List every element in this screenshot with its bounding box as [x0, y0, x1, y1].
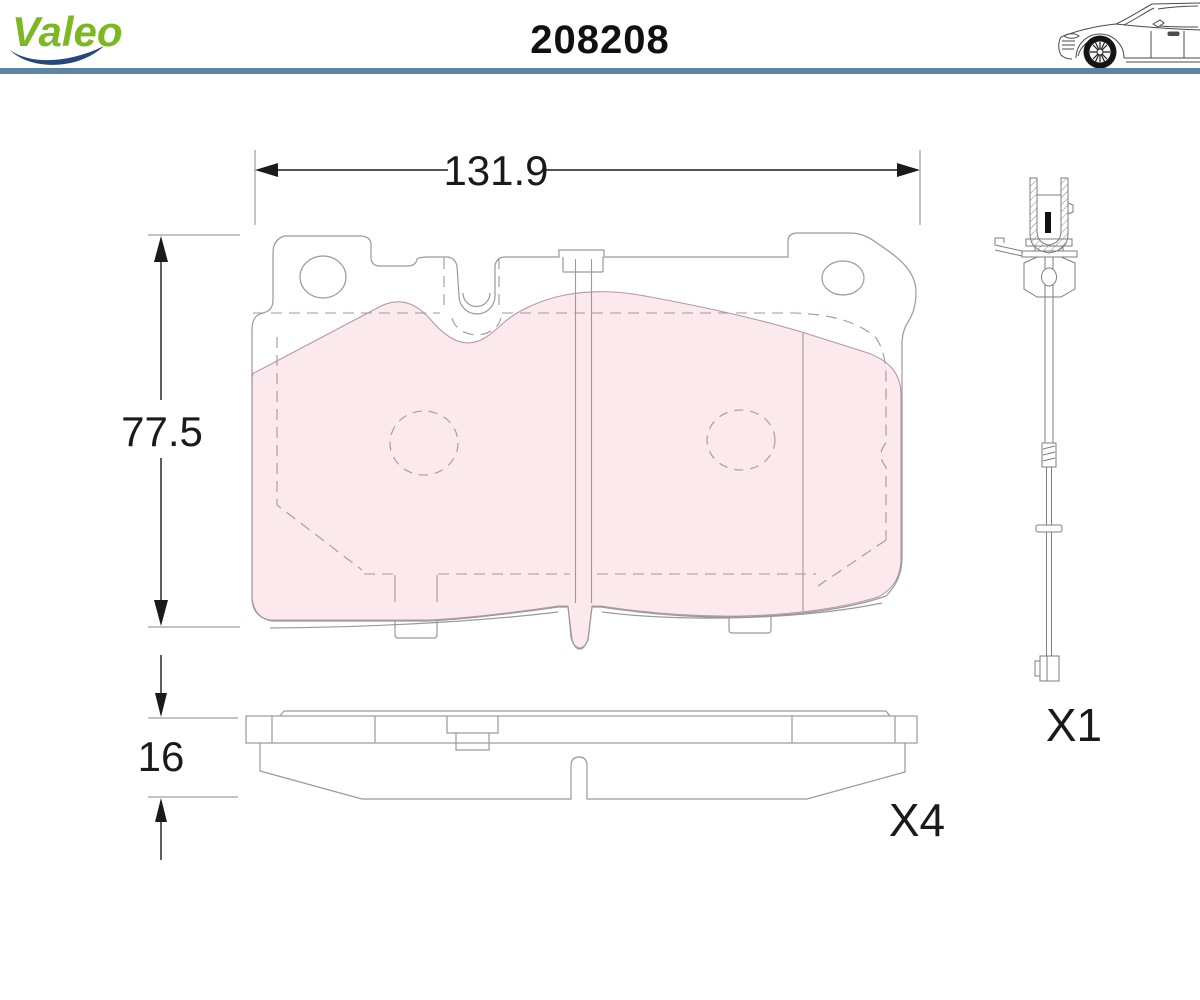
sensor-terminal — [1040, 656, 1059, 681]
dimension-width: 131.9 — [255, 147, 920, 225]
mounting-hole-right — [822, 261, 864, 295]
side-view-friction — [260, 743, 905, 799]
dimension-height: 77.5 — [121, 235, 240, 627]
bottom-tab-right — [729, 616, 771, 633]
sensor-contact-pin — [1045, 212, 1051, 233]
car-side-illustration — [1048, 0, 1200, 68]
mounting-hole-left — [300, 256, 346, 298]
header-divider — [0, 68, 1200, 74]
side-view-backplate — [246, 716, 917, 743]
dimension-thickness: 16 — [138, 655, 238, 860]
wear-sensor-drawing — [995, 178, 1077, 681]
dimension-thickness-label: 16 — [138, 733, 185, 780]
dimension-height-label: 77.5 — [121, 408, 203, 455]
header: Valeo 208208 — [0, 0, 1200, 74]
front-view-drawing — [252, 233, 916, 649]
technical-drawing-page: Valeo 208208 — [0, 0, 1200, 1000]
pad-quantity-label: X4 — [889, 794, 945, 846]
sensor-quantity-label: X1 — [1046, 699, 1102, 751]
part-number-title: 208208 — [0, 18, 1200, 63]
car-body-outline — [1059, 3, 1200, 62]
sensor-wire — [1045, 297, 1053, 443]
side-view-drawing — [246, 711, 917, 799]
car-wheel-icon — [1084, 36, 1117, 69]
brake-pad-technical-drawing: 131.9 77.5 16 X4 X1 — [0, 0, 1200, 1000]
dimension-width-label: 131.9 — [443, 147, 548, 194]
friction-material — [252, 292, 901, 648]
